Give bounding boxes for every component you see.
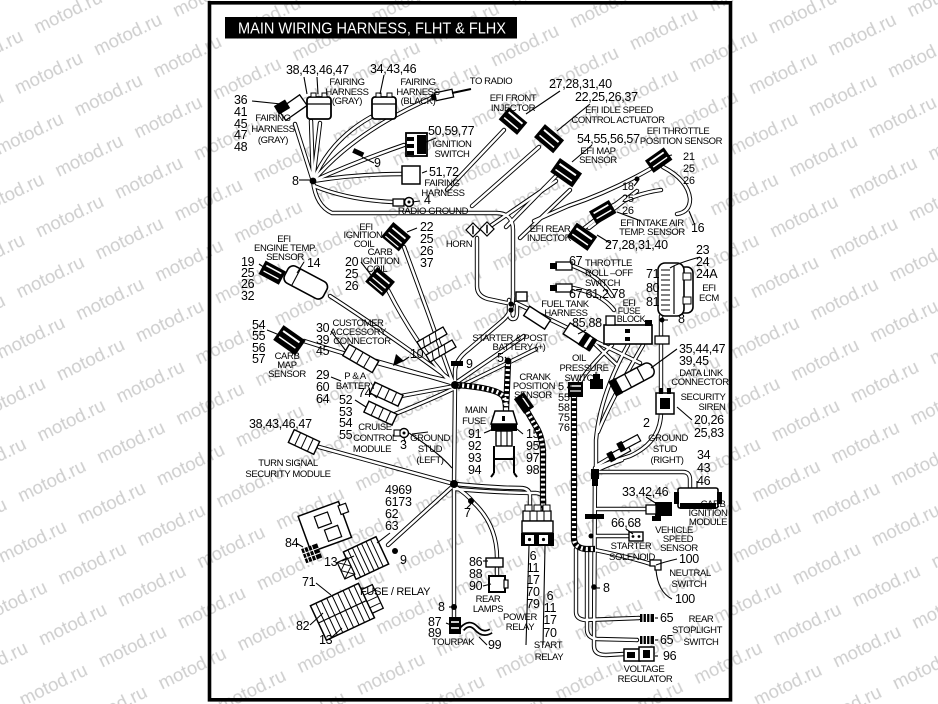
- svg-text:MAIN: MAIN: [465, 405, 488, 416]
- svg-text:55: 55: [339, 428, 353, 442]
- svg-text:STUD: STUD: [418, 444, 443, 455]
- svg-text:100: 100: [679, 552, 699, 566]
- svg-text:98: 98: [526, 463, 540, 477]
- svg-text:7: 7: [464, 506, 471, 520]
- svg-text:63: 63: [385, 519, 399, 533]
- svg-text:71: 71: [302, 575, 316, 589]
- svg-text:25: 25: [683, 163, 695, 175]
- svg-text:21: 21: [683, 151, 695, 163]
- svg-text:43: 43: [697, 461, 711, 475]
- svg-text:71: 71: [646, 267, 660, 281]
- svg-text:65: 65: [660, 611, 674, 625]
- svg-text:8: 8: [603, 581, 610, 595]
- svg-text:RADIO GROUND: RADIO GROUND: [398, 206, 469, 217]
- svg-text:GROUND: GROUND: [648, 433, 688, 444]
- svg-text:70: 70: [543, 626, 557, 640]
- svg-text:10: 10: [410, 347, 424, 361]
- svg-text:39,45: 39,45: [679, 354, 709, 368]
- svg-text:17: 17: [543, 613, 557, 627]
- svg-text:SENSOR: SENSOR: [514, 390, 552, 401]
- svg-text:FAIRING: FAIRING: [255, 113, 290, 124]
- svg-text:SENSOR: SENSOR: [266, 252, 304, 263]
- svg-text:82: 82: [296, 619, 310, 633]
- svg-text:(RIGHT): (RIGHT): [650, 455, 683, 466]
- svg-text:MODULE: MODULE: [353, 444, 391, 455]
- svg-text:5: 5: [497, 351, 504, 365]
- svg-text:(GRAY): (GRAY): [332, 96, 362, 107]
- svg-text:8: 8: [678, 312, 685, 326]
- svg-text:34: 34: [697, 448, 711, 462]
- svg-text:66,68: 66,68: [611, 516, 641, 530]
- svg-text:50,59,77: 50,59,77: [428, 124, 475, 138]
- svg-text:9: 9: [374, 156, 381, 170]
- svg-text:MODULE: MODULE: [689, 517, 727, 528]
- svg-text:45: 45: [316, 344, 330, 358]
- svg-text:8: 8: [438, 600, 445, 614]
- svg-text:REGULATOR: REGULATOR: [618, 674, 673, 685]
- svg-text:13: 13: [324, 555, 338, 569]
- svg-text:SENSOR: SENSOR: [579, 155, 617, 166]
- svg-text:26: 26: [345, 279, 359, 293]
- svg-text:94: 94: [468, 463, 482, 477]
- svg-text:CONNECTOR: CONNECTOR: [333, 336, 391, 347]
- svg-text:HORN: HORN: [446, 239, 473, 250]
- svg-text:TURN SIGNAL: TURN SIGNAL: [258, 458, 318, 469]
- svg-text:CRUISE: CRUISE: [358, 422, 392, 433]
- svg-text:CONTROL ACTUATOR: CONTROL ACTUATOR: [571, 115, 665, 126]
- svg-text:STARTER: STARTER: [611, 541, 652, 552]
- svg-text:CONNECTOR: CONNECTOR: [671, 377, 729, 388]
- svg-text:(GRAY): (GRAY): [258, 135, 288, 146]
- svg-text:INJECTOR: INJECTOR: [491, 103, 536, 114]
- svg-text:TO RADIO: TO RADIO: [470, 76, 513, 87]
- svg-text:SWITCH: SWITCH: [671, 579, 707, 590]
- svg-text:NEUTRAL: NEUTRAL: [669, 568, 711, 579]
- svg-text:57: 57: [252, 352, 266, 366]
- svg-text:34,43,46: 34,43,46: [370, 62, 417, 76]
- svg-text:9: 9: [466, 357, 473, 371]
- svg-text:(LEFT): (LEFT): [416, 455, 443, 466]
- svg-text:24A: 24A: [696, 267, 718, 281]
- svg-text:9: 9: [400, 553, 407, 567]
- svg-text:38,43,46,47: 38,43,46,47: [249, 417, 312, 431]
- svg-text:SENSOR: SENSOR: [268, 369, 306, 380]
- svg-text:48: 48: [234, 140, 248, 154]
- svg-text:POSITION SENSOR: POSITION SENSOR: [640, 136, 723, 147]
- svg-text:REAR: REAR: [689, 614, 714, 625]
- svg-text:(BLACK): (BLACK): [401, 96, 436, 107]
- svg-text:SOLENOID: SOLENOID: [609, 552, 655, 563]
- svg-text:32: 32: [241, 289, 255, 303]
- svg-text:2: 2: [643, 416, 650, 430]
- svg-text:SWITCH: SWITCH: [434, 149, 470, 160]
- svg-text:27,28,31,40: 27,28,31,40: [549, 77, 612, 91]
- svg-text:81: 81: [646, 295, 660, 309]
- svg-text:84: 84: [285, 536, 299, 550]
- svg-text:STUD: STUD: [653, 444, 678, 455]
- svg-text:TOURPAK: TOURPAK: [432, 637, 475, 648]
- svg-text:90: 90: [469, 579, 483, 593]
- svg-text:BATTERY: BATTERY: [336, 381, 377, 392]
- svg-text:20,26: 20,26: [694, 413, 724, 427]
- svg-text:99: 99: [488, 638, 502, 652]
- svg-text:100: 100: [675, 592, 695, 606]
- svg-text:START: START: [534, 640, 563, 651]
- svg-text:RELAY: RELAY: [535, 652, 565, 663]
- svg-text:MAIN WIRING HARNESS, FLHT &: MAIN WIRING HARNESS, FLHT & FLHX: [238, 21, 506, 38]
- svg-text:INJECTOR: INJECTOR: [527, 233, 572, 244]
- svg-text:18: 18: [622, 181, 634, 193]
- svg-text:SWITCH: SWITCH: [683, 637, 719, 648]
- svg-text:76: 76: [558, 422, 570, 434]
- svg-text:46: 46: [697, 474, 711, 488]
- svg-text:79: 79: [526, 597, 540, 611]
- svg-text:80: 80: [646, 281, 660, 295]
- svg-text:GROUND: GROUND: [410, 433, 450, 444]
- svg-text:65: 65: [660, 633, 674, 647]
- svg-text:16: 16: [691, 221, 705, 235]
- svg-text:26: 26: [622, 205, 634, 217]
- svg-text:8: 8: [292, 174, 299, 188]
- svg-text:TEMP. SENSOR: TEMP. SENSOR: [619, 227, 685, 238]
- svg-text:85,88: 85,88: [572, 316, 602, 330]
- svg-text:BLOCK: BLOCK: [617, 314, 646, 324]
- svg-text:3: 3: [400, 438, 407, 452]
- svg-text:FUSE: FUSE: [462, 416, 486, 427]
- svg-text:4: 4: [424, 193, 431, 207]
- svg-text:51,72: 51,72: [429, 165, 459, 179]
- svg-text:25,83: 25,83: [694, 426, 724, 440]
- svg-text:SECURITY MODULE: SECURITY MODULE: [245, 469, 330, 480]
- svg-text:LAMPS: LAMPS: [473, 604, 503, 615]
- svg-text:STOPLIGHT: STOPLIGHT: [672, 625, 723, 636]
- svg-text:HARNESS: HARNESS: [251, 124, 294, 135]
- svg-text:27,28,31,40: 27,28,31,40: [605, 238, 668, 252]
- svg-text:64: 64: [316, 392, 330, 406]
- svg-text:ECM: ECM: [699, 293, 719, 304]
- svg-text:26: 26: [683, 175, 695, 187]
- svg-text:67: 67: [569, 254, 583, 268]
- svg-text:25: 25: [622, 193, 634, 205]
- svg-text:96: 96: [663, 649, 677, 663]
- svg-text:COIL: COIL: [367, 264, 388, 275]
- svg-text:RELAY: RELAY: [506, 622, 536, 633]
- svg-text:CONTROL: CONTROL: [353, 433, 397, 444]
- svg-text:37: 37: [420, 256, 434, 270]
- svg-text:22,25,26,37: 22,25,26,37: [575, 90, 638, 104]
- svg-text:14: 14: [307, 256, 321, 270]
- svg-text:54,55,56,57: 54,55,56,57: [577, 132, 640, 146]
- svg-text:33,42,46: 33,42,46: [622, 485, 669, 499]
- svg-text:SIREN: SIREN: [698, 402, 726, 413]
- svg-text:FUSE / RELAY: FUSE / RELAY: [360, 586, 431, 598]
- svg-text:38,43,46,47: 38,43,46,47: [286, 63, 349, 77]
- svg-text:13: 13: [319, 633, 333, 647]
